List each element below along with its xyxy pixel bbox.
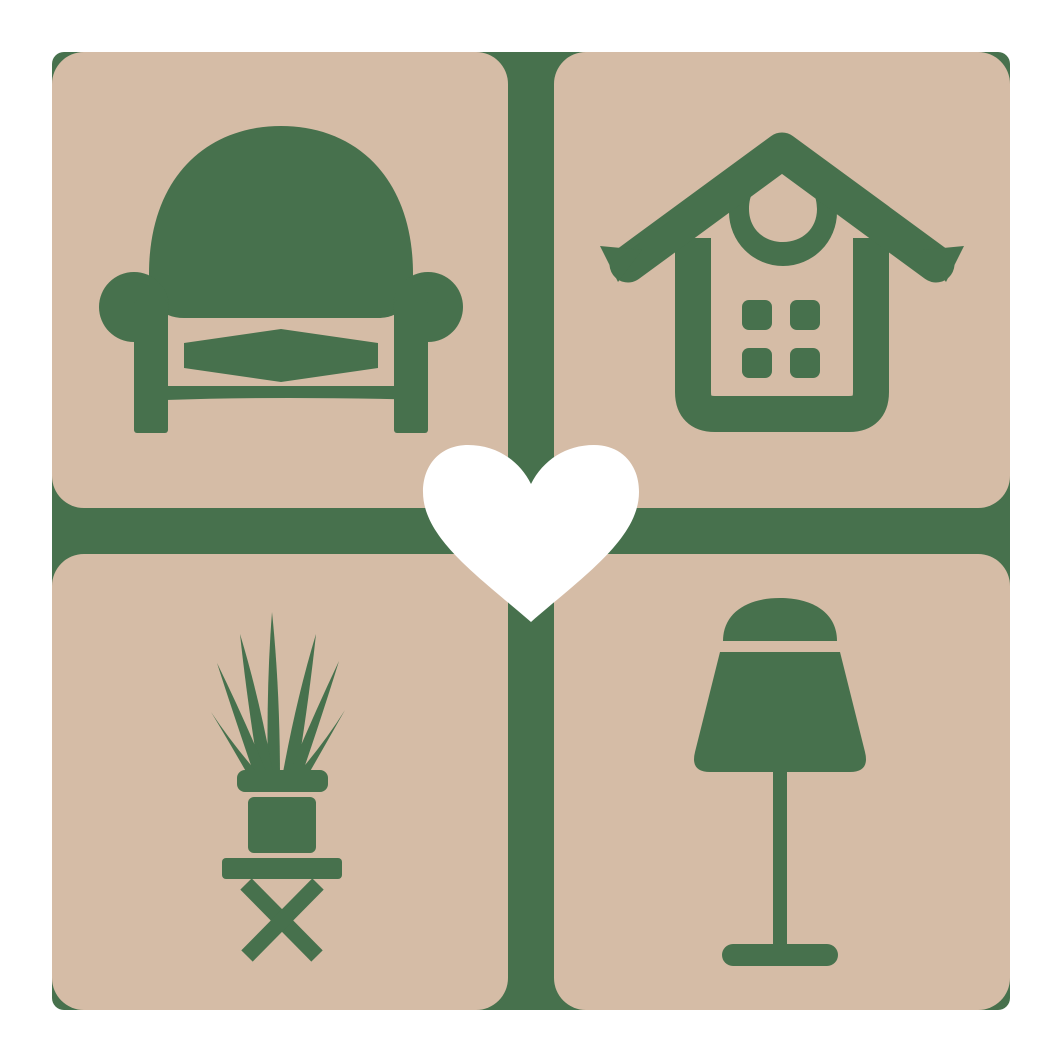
house-window-pane <box>742 348 772 378</box>
house-window-pane <box>742 300 772 330</box>
house-window-pane <box>790 300 820 330</box>
lamp-stem <box>773 772 787 948</box>
house-window-pane <box>790 348 820 378</box>
lamp-shade <box>694 652 866 772</box>
lamp-base <box>722 944 838 966</box>
plant-pot-body <box>248 797 316 853</box>
armchair-right-leg <box>394 300 428 433</box>
home-decor-logo <box>0 0 1063 1063</box>
armchair-front-rail <box>166 386 428 400</box>
logo-canvas <box>0 0 1063 1063</box>
stool-top <box>222 858 342 879</box>
plant-pot-rim <box>237 770 328 792</box>
armchair-left-leg <box>134 300 168 433</box>
